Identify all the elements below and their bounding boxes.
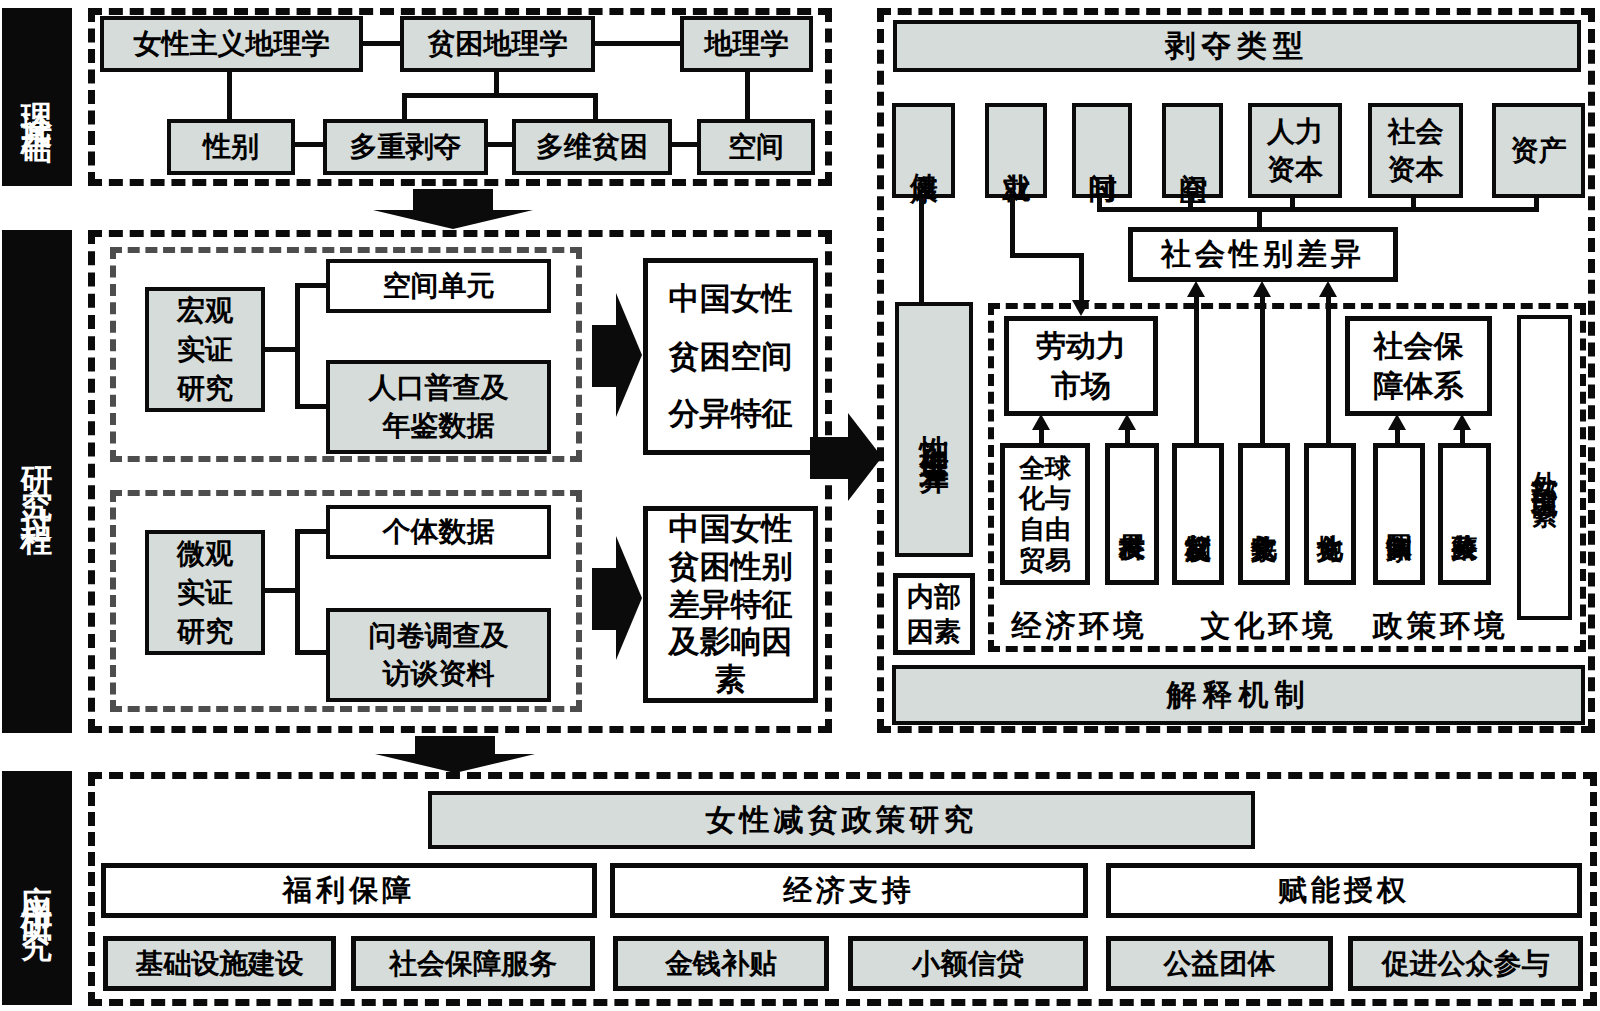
box-public-policy: 公共政策 — [1438, 443, 1491, 585]
connector-line — [295, 404, 326, 409]
box-space: 空间 — [697, 119, 815, 175]
box-geography: 地理学 — [680, 16, 813, 72]
label-cultural-environment: 文化环境 — [1196, 606, 1341, 647]
connector-line — [402, 93, 598, 98]
box-economic-support: 经济支持 — [610, 863, 1088, 918]
box-spatial-differentiation-result: 中国女性 贫困空间 分异特征 — [643, 258, 818, 455]
box-employment: 就业 — [985, 103, 1047, 198]
box-labor-market: 劳动力 市场 — [1004, 316, 1158, 416]
box-survey-interview-data: 问卷调查及 访谈资料 — [326, 608, 551, 702]
connector-line — [1395, 429, 1400, 443]
header-policy-research: 女性减贫政策研究 — [428, 791, 1255, 849]
flow-arrow-down-icon — [373, 210, 533, 229]
connector-line — [672, 142, 697, 147]
section-bar-theory: 理论基础 — [2, 8, 72, 186]
box-money-subsidy: 金钱补贴 — [613, 936, 829, 991]
arrowhead-up — [1453, 414, 1471, 430]
box-social-gender-difference: 社会性别差异 — [1128, 227, 1398, 282]
box-internal-factors: 内部 因素 — [893, 573, 975, 655]
connector-line — [593, 93, 598, 119]
connector-line — [919, 198, 924, 302]
section-bar-application: 应用研究 — [2, 771, 72, 1005]
box-macro-empirical-study: 宏观 实证 研究 — [145, 287, 265, 412]
section-bar-process: 研究过程 — [2, 230, 72, 733]
label-policy-environment: 政策环境 — [1368, 606, 1513, 647]
label-economic-environment: 经济环境 — [1007, 606, 1152, 647]
arrowhead-up — [1118, 414, 1136, 430]
connector-line — [595, 41, 680, 46]
box-space-deprivation: 空间 — [1162, 103, 1223, 198]
box-public-welfare-groups: 公益团体 — [1106, 936, 1333, 991]
result-arrow-icon — [616, 293, 642, 417]
box-globalization-free-trade: 全球 化与 自由 贸易 — [1000, 443, 1090, 585]
arrowhead-up — [1032, 414, 1050, 430]
flow-arrow-down-stem — [415, 736, 495, 754]
box-multiple-deprivation: 多重剥夺 — [323, 119, 488, 175]
flow-arrow-right-icon — [848, 413, 882, 501]
arrowhead-up — [1187, 281, 1205, 297]
connector-line — [363, 41, 400, 46]
box-social-capital: 社会 资本 — [1368, 103, 1463, 198]
header-deprivation-types: 剥夺类型 — [893, 20, 1581, 72]
connector-line — [1039, 429, 1044, 443]
connector-line — [295, 283, 300, 409]
connector-line — [1194, 294, 1199, 443]
box-microcredit: 小额信贷 — [848, 936, 1088, 991]
connector-line — [1326, 294, 1331, 443]
result-arrow-stem — [592, 568, 616, 630]
box-social-security-services: 社会保障服务 — [351, 936, 595, 991]
flow-arrow-down-stem — [413, 189, 493, 210]
box-religious-culture: 宗教文化 — [1238, 443, 1290, 585]
box-social-security-system: 社会保 障体系 — [1345, 316, 1492, 416]
box-technology-development: 科技发展 — [1105, 443, 1159, 585]
box-poverty-geography: 贫困地理学 — [400, 16, 595, 72]
connector-line — [1097, 207, 1539, 212]
connector-line — [1257, 211, 1262, 227]
box-multidimensional-poverty: 多维贫困 — [512, 119, 672, 175]
connector-line — [295, 142, 323, 147]
connector-line — [402, 93, 407, 119]
connector-line — [745, 72, 750, 119]
diagram-canvas: 理论基础 研究过程 应用研究 女性主义地理学 贫困地理学 地理学 性别 多重剥夺… — [0, 0, 1600, 1011]
box-individual-data: 个体数据 — [326, 505, 551, 559]
box-welfare-security: 福利保障 — [101, 863, 597, 918]
arrowhead-up — [1319, 281, 1337, 297]
connector-line — [1125, 429, 1130, 443]
connector-line — [1079, 253, 1084, 301]
flow-arrow-right-stem — [810, 437, 848, 479]
box-assets: 资产 — [1492, 103, 1585, 198]
connector-line — [1010, 253, 1084, 258]
box-census-yearbook-data: 人口普查及 年鉴数据 — [326, 360, 551, 454]
box-time: 时间 — [1072, 103, 1132, 198]
box-human-capital: 人力 资本 — [1248, 103, 1342, 198]
box-feminist-geography: 女性主义地理学 — [100, 16, 363, 72]
result-arrow-icon — [616, 536, 642, 660]
connector-line — [295, 650, 326, 655]
box-infrastructure-construction: 基础设施建设 — [103, 936, 336, 991]
connector-line — [1460, 429, 1465, 443]
result-arrow-stem — [592, 325, 616, 387]
connector-line — [1260, 294, 1265, 443]
header-explanation-mechanism: 解释机制 — [892, 665, 1585, 725]
flow-arrow-down-icon — [375, 754, 535, 773]
box-gender-difference-result: 中国女性 贫困性别 差异特征 及影响因 素 — [643, 506, 818, 703]
box-gender: 性别 — [167, 119, 295, 175]
box-health: 健康 — [892, 103, 955, 198]
box-state-system: 国家体制 — [1373, 443, 1425, 585]
arrowhead-up — [1253, 281, 1271, 297]
arrowhead-up — [1388, 414, 1406, 430]
connector-line — [1010, 198, 1015, 258]
connector-line — [488, 142, 512, 147]
connector-line — [295, 529, 300, 655]
box-empowerment: 赋能授权 — [1106, 863, 1582, 918]
connector-line — [227, 72, 232, 119]
box-micro-empirical-study: 微观 实证 研究 — [145, 530, 265, 655]
connector-line — [295, 283, 326, 288]
connector-line — [295, 529, 326, 534]
box-external-environment-factors: 外部环境因素 — [1517, 315, 1572, 620]
box-promote-public-participation: 促进公众参与 — [1348, 936, 1583, 991]
box-patriarchy-system: 父权制度 — [1172, 443, 1224, 585]
box-local-culture: 地方文化 — [1304, 443, 1356, 585]
box-physiological-gender-difference: 性别生理差异 — [895, 302, 973, 557]
box-spatial-unit: 空间单元 — [326, 259, 551, 313]
